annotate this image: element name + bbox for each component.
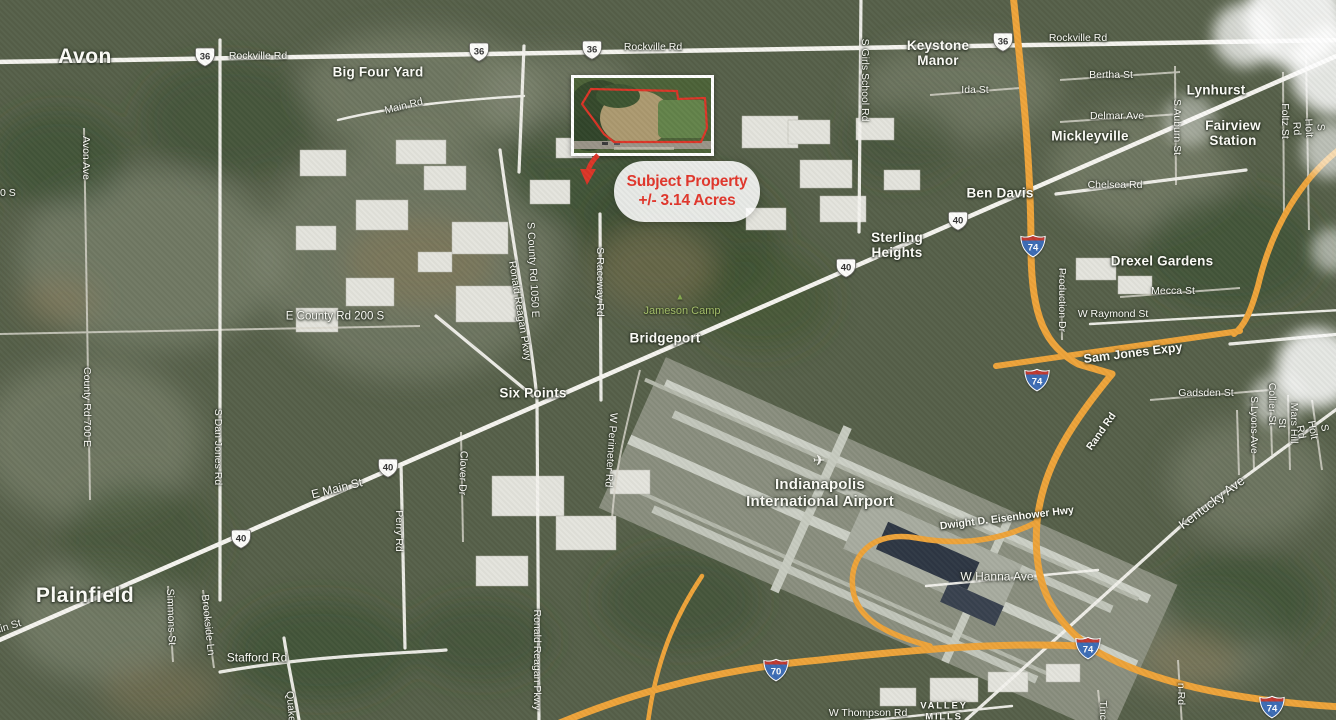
subject-property-callout: Subject Property +/- 3.14 Acres bbox=[614, 161, 760, 222]
property-inset-photo bbox=[571, 75, 714, 156]
satellite-map: AvonRockville RdBig Four YardMain RdRock… bbox=[0, 0, 1336, 720]
callout-line-2: +/- 3.14 Acres bbox=[638, 192, 735, 210]
callout-line-1: Subject Property bbox=[627, 173, 748, 191]
callout-arrow bbox=[576, 152, 604, 188]
